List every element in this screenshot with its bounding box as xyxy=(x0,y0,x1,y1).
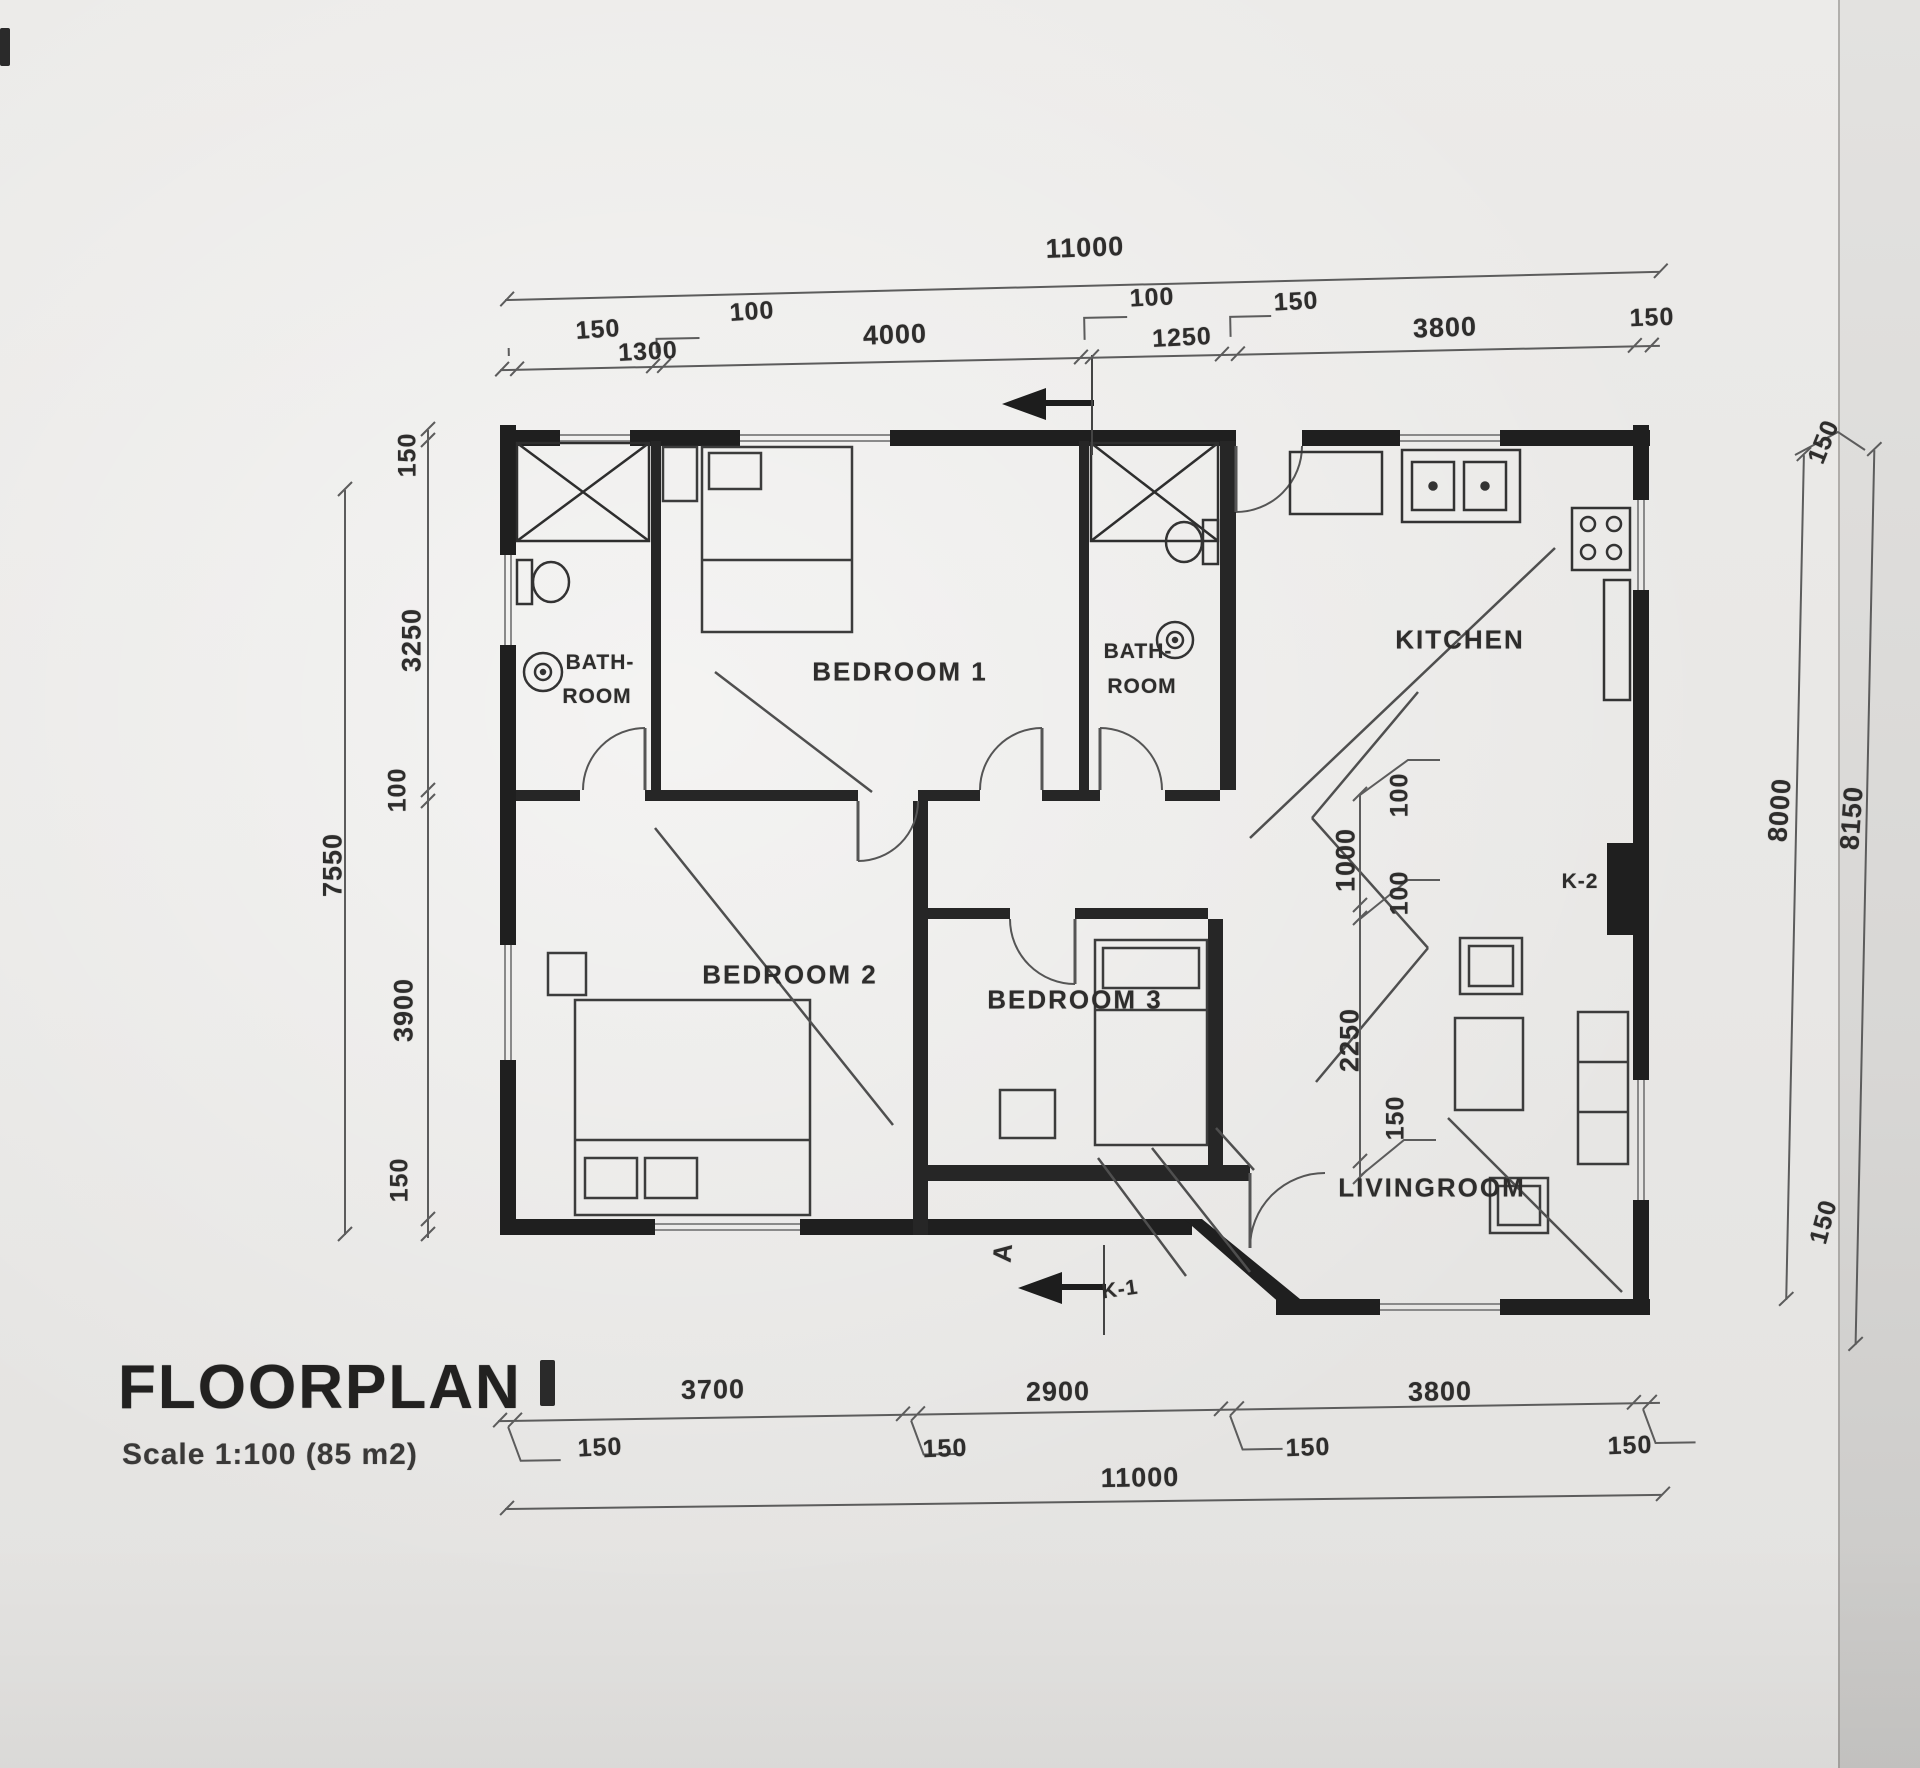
dim-right-8000: 8000 xyxy=(1762,777,1797,843)
interior-walls xyxy=(516,441,1250,1235)
room-label-bathroom-right-2: ROOM xyxy=(1107,675,1176,699)
room-label-bedroom-3: BEDROOM 3 xyxy=(987,985,1162,1016)
dim-bottom-3700: 3700 xyxy=(681,1374,746,1406)
dim-left-100: 100 xyxy=(384,768,413,813)
scanned-floorplan-page: { "title": { "main": "FLOORPLAN", "scale… xyxy=(0,0,1920,1768)
bedroom-furniture xyxy=(548,447,1207,1215)
dim-int-1000: 1000 xyxy=(1331,828,1362,892)
dim-top-overall: 11000 xyxy=(1045,231,1125,265)
dim-int-150: 150 xyxy=(1382,1096,1411,1141)
dim-bottom-150c: 150 xyxy=(1285,1433,1331,1464)
drawing-scale-note: Scale 1:100 (85 m2) xyxy=(122,1438,418,1472)
dim-top-4000: 4000 xyxy=(862,318,927,351)
dim-top-150a: 150 xyxy=(575,314,622,346)
dim-bottom-150a: 150 xyxy=(577,1432,623,1463)
floorplan-drawing xyxy=(0,0,1920,1768)
closet-crosses xyxy=(517,443,1218,541)
room-label-bathroom-left-1: BATH- xyxy=(566,651,635,675)
dim-bottom-2900: 2900 xyxy=(1026,1376,1091,1408)
dim-left-3250: 3250 xyxy=(397,608,428,672)
dim-right-8150: 8150 xyxy=(1834,785,1869,851)
dim-top-1250: 1250 xyxy=(1151,322,1212,354)
room-label-kitchen: KITCHEN xyxy=(1395,625,1525,656)
dim-bottom-150d: 150 xyxy=(1607,1431,1653,1462)
room-label-livingroom: LIVINGROOM xyxy=(1338,1173,1526,1204)
room-label-k2: K-2 xyxy=(1562,870,1599,894)
dim-int-2250: 2250 xyxy=(1335,1008,1366,1072)
dim-left-150a: 150 xyxy=(394,433,423,478)
dim-left-3900: 3900 xyxy=(389,978,420,1042)
dim-left-overall-7550: 7550 xyxy=(318,833,349,897)
dim-int-100a: 100 xyxy=(1386,773,1415,818)
room-label-bedroom-1: BEDROOM 1 xyxy=(812,657,987,688)
drawing-title: FLOORPLAN xyxy=(118,1352,522,1423)
room-label-k1: K-1 xyxy=(1100,1276,1140,1305)
dimension-lines xyxy=(338,264,1881,1515)
dim-bottom-overall: 11000 xyxy=(1100,1462,1179,1494)
dim-top-150b: 150 xyxy=(1273,286,1319,317)
dim-int-100b: 100 xyxy=(1386,871,1415,916)
dim-top-100b: 100 xyxy=(1129,282,1175,313)
dim-top-150c: 150 xyxy=(1629,303,1675,334)
room-label-bedroom-2: BEDROOM 2 xyxy=(702,960,877,991)
dim-top-1300: 1300 xyxy=(617,336,678,368)
room-label-bathroom-left-2: ROOM xyxy=(562,685,631,709)
room-label-bathroom-right-1: BATH- xyxy=(1104,640,1173,664)
dim-bottom-3800: 3800 xyxy=(1408,1376,1473,1408)
dim-bottom-150b: 150 xyxy=(922,1434,968,1465)
dim-top-3800: 3800 xyxy=(1412,311,1477,344)
section-marker-letter: A xyxy=(987,1240,1020,1263)
kitchen-fixtures xyxy=(1290,450,1630,700)
dim-top-100a: 100 xyxy=(729,296,776,328)
dim-left-150b: 150 xyxy=(386,1158,415,1203)
